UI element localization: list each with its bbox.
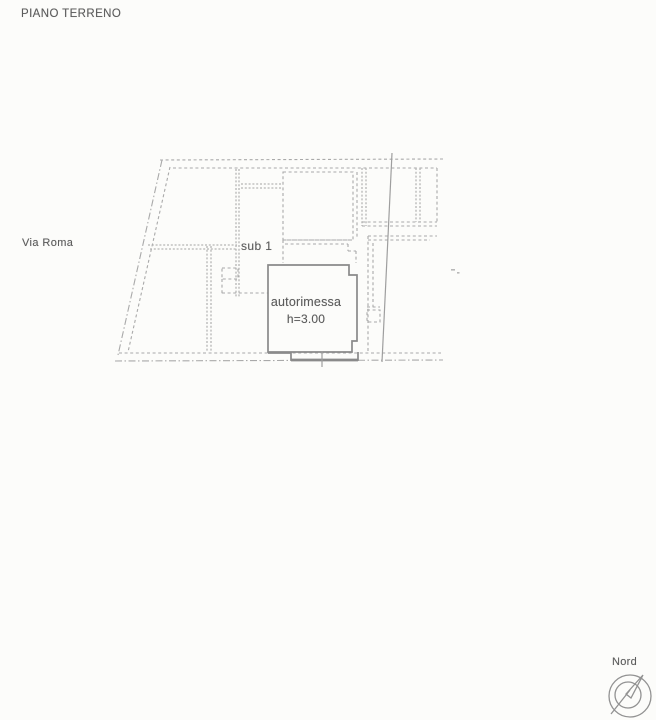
north-compass: [609, 675, 651, 717]
vestibule: [283, 240, 356, 263]
subunit-label: sub 1: [241, 239, 272, 253]
interior-walls-left: [148, 169, 282, 352]
floorplan-drawing: [0, 0, 656, 720]
scanned-floorplan-sheet: PIANO TERRENO Via Roma sub 1 autorimessa…: [0, 0, 656, 720]
garage-name-label: autorimessa: [266, 295, 346, 309]
floor-title: PIANO TERRENO: [21, 8, 121, 20]
street-label: Via Roma: [22, 237, 73, 249]
parcel-boundary: [115, 159, 443, 361]
central-room: [283, 172, 357, 240]
scan-specks: [451, 269, 460, 274]
north-label: Nord: [612, 656, 637, 668]
garage-height-label: h=3.00: [266, 312, 346, 326]
property-division-line: [382, 153, 392, 362]
right-strip-walls: [367, 153, 437, 362]
top-right-room: [362, 168, 437, 226]
